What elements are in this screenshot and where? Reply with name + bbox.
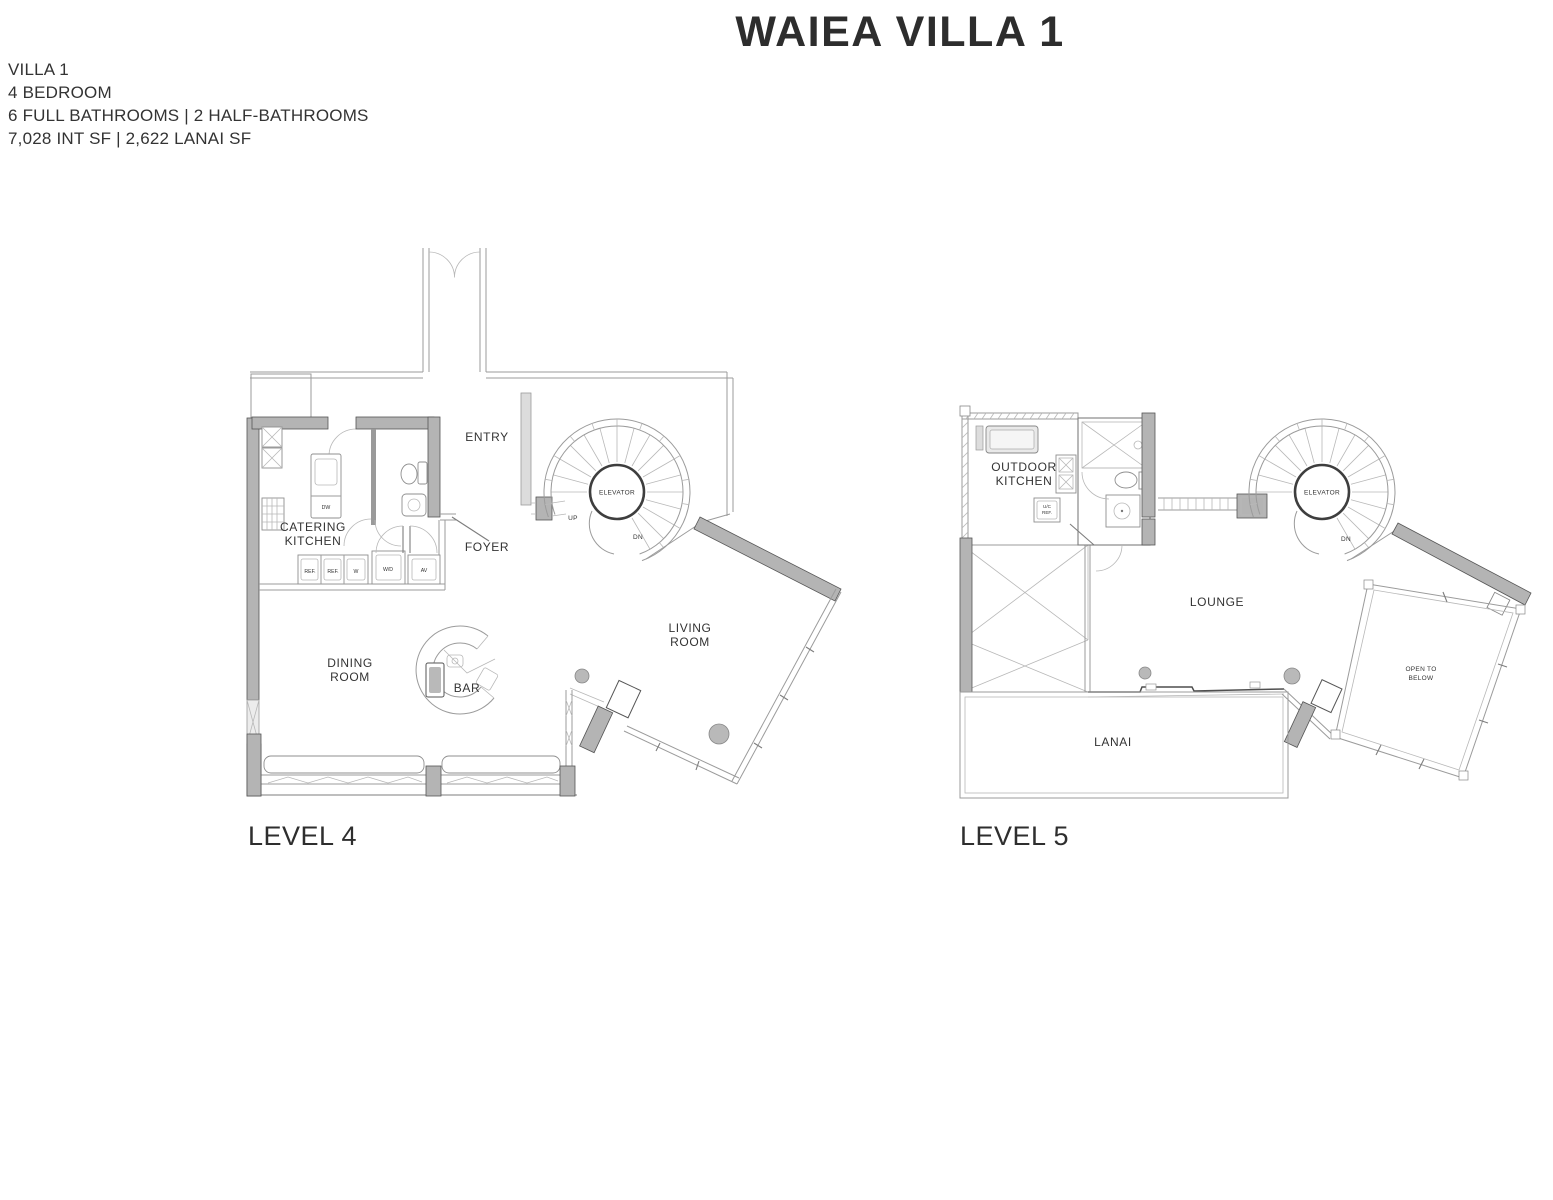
level5-plan: OUTDOOR KITCHEN U/C REF. DN LOUNGE LANAI…	[960, 406, 1531, 851]
column	[1284, 668, 1300, 684]
lounge-north-wall	[1392, 523, 1531, 605]
bathroom	[1070, 413, 1155, 571]
column	[575, 669, 589, 683]
open-to-below-label-2: BELOW	[1409, 675, 1435, 682]
room-label-bar: BAR	[454, 681, 480, 695]
dishwasher-label: DW	[322, 505, 331, 511]
room-label-lounge: LOUNGE	[1190, 595, 1244, 609]
living-room-north-wall	[694, 517, 841, 601]
room-label-catering-kitchen: CATERING	[280, 520, 346, 534]
room-label-catering-kitchen-2: KITCHEN	[285, 534, 342, 548]
room-label-foyer: FOYER	[465, 540, 509, 554]
powder-room	[375, 462, 427, 546]
fireplace	[580, 677, 641, 759]
stair-dn-label-l5: DN	[1341, 536, 1351, 543]
uc-fridge-label: U/C	[1043, 504, 1052, 509]
trellis	[960, 538, 1090, 692]
stair-dn-label: DN	[633, 534, 643, 541]
wine-label: W	[354, 569, 359, 575]
washer-dryer-label: W/D	[383, 567, 393, 573]
fridge-label-2: REF.	[327, 569, 338, 575]
room-label-outdoor-kitchen: OUTDOOR	[991, 460, 1057, 474]
entry-corridor	[423, 248, 486, 372]
floor-plans-canvas: ELEVATOR	[0, 0, 1553, 1200]
stair-up-label: UP	[568, 515, 578, 522]
column	[709, 724, 729, 744]
elevator-stair-level4	[544, 419, 690, 561]
room-label-outdoor-kitchen-2: KITCHEN	[996, 474, 1053, 488]
fridge-label-1: REF.	[304, 569, 315, 575]
room-label-living: LIVING	[669, 621, 712, 635]
av-closet-label: AV	[421, 568, 428, 574]
room-label-entry: ENTRY	[465, 430, 508, 444]
elevator-stair-level5	[1249, 419, 1395, 561]
level4-plan: ENTRY CATERING KITCHEN FOYER DINING ROOM…	[247, 248, 841, 851]
open-to-below-label: OPEN TO	[1405, 666, 1436, 673]
fireplace-level5	[1284, 676, 1342, 754]
room-label-dining-2: ROOM	[330, 670, 370, 684]
level5-title: LEVEL 5	[960, 821, 1069, 851]
room-label-lanai: LANAI	[1094, 735, 1132, 749]
column	[1139, 667, 1151, 679]
level4-title: LEVEL 4	[248, 821, 357, 851]
living-room-walls	[566, 589, 841, 784]
window-wall	[247, 734, 577, 796]
floorplan-sheet: { "header": { "title": "WAIEA VILLA 1" }…	[0, 0, 1553, 1200]
bar-counter	[416, 626, 498, 714]
room-label-dining: DINING	[327, 656, 373, 670]
uc-fridge-label-2: REF.	[1042, 510, 1052, 515]
room-label-living-2: ROOM	[670, 635, 710, 649]
